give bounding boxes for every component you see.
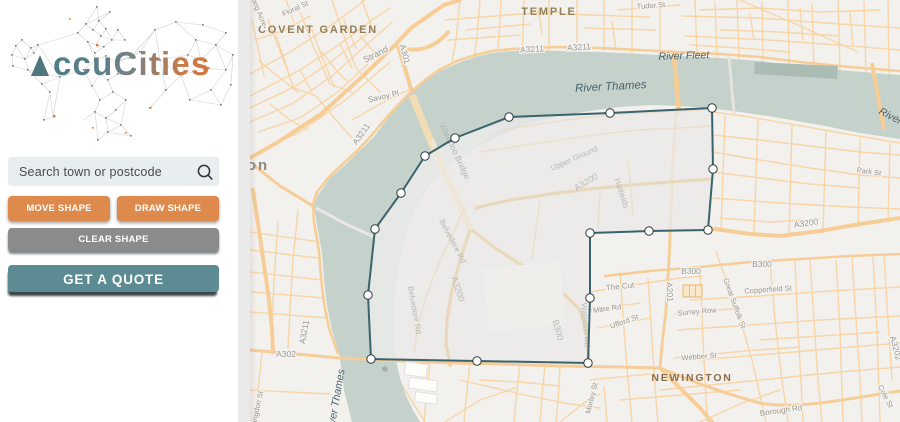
svg-text:B300: B300 (681, 266, 701, 276)
svg-text:A3211: A3211 (567, 41, 592, 53)
svg-text:COVENT GARDEN: COVENT GARDEN (258, 24, 378, 36)
svg-text:A201: A201 (664, 282, 675, 303)
svg-text:A3211: A3211 (520, 43, 545, 55)
svg-text:NEWINGTON: NEWINGTON (651, 372, 732, 384)
svg-text:B300: B300 (752, 259, 772, 269)
svg-text:TEMPLE: TEMPLE (521, 6, 576, 18)
svg-text:River Fleet: River Fleet (658, 49, 710, 63)
svg-text:A302: A302 (276, 349, 296, 359)
